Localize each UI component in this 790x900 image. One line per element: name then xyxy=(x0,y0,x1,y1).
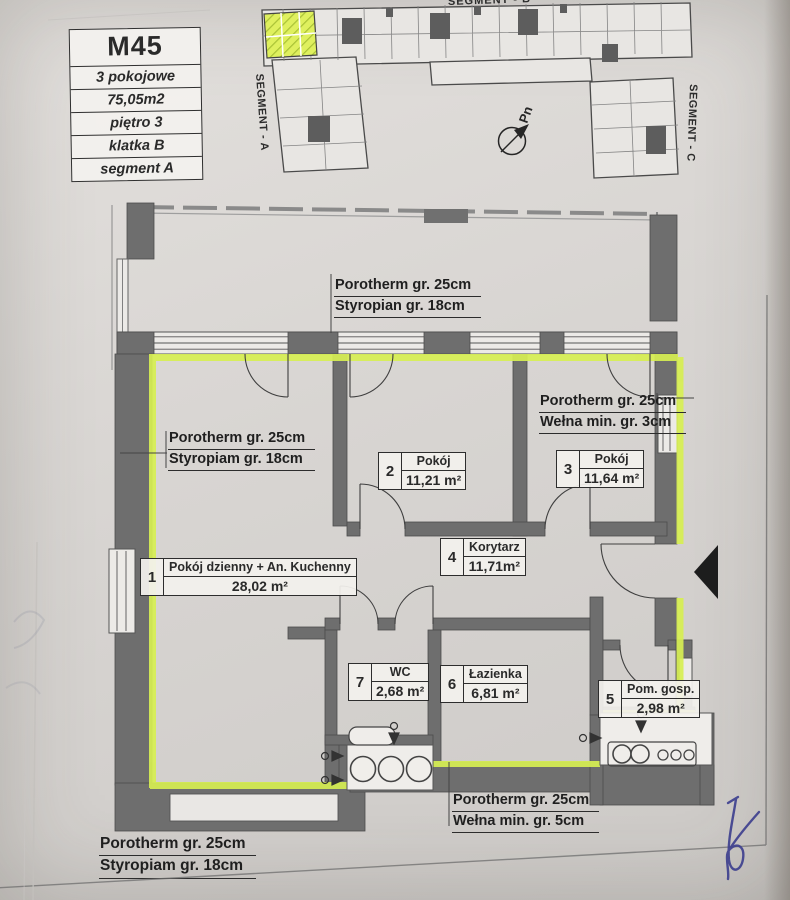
room-area: 2,98 m² xyxy=(622,699,699,717)
paper-creases xyxy=(6,542,44,900)
wall-label-bottom: Porotherm gr. 25cm Wełna min. gr. 5cm xyxy=(452,791,599,833)
north-arrow-icon xyxy=(499,124,530,155)
unit-id: M45 xyxy=(70,28,201,67)
wall-label-left: Porotherm gr. 25cm Styropiam gr. 18cm xyxy=(168,429,315,471)
apartment-info-card: M45 3 pokojowe 75,05m2 piętro 3 klatka B… xyxy=(69,27,204,182)
sink-symbol xyxy=(613,745,631,763)
wall-label-bottom-left: Porotherm gr. 25cm Styropiam gr. 18cm xyxy=(99,834,256,879)
room-label-wc: 7 WC 2,68 m² xyxy=(348,663,429,701)
unit-floor: piętro 3 xyxy=(71,111,201,136)
room-area: 11,71m² xyxy=(464,557,525,575)
highlighted-unit xyxy=(264,11,317,58)
room-name: WC xyxy=(372,664,428,682)
segment-a-label: SEGMENT - A xyxy=(253,73,270,151)
room-name: Pokój dzienny + An. Kuchenny xyxy=(164,559,356,577)
room-area: 11,21 m² xyxy=(402,471,465,489)
room-name: Pokój xyxy=(580,451,643,469)
room-name: Łazienka xyxy=(464,666,527,684)
room-number: 5 xyxy=(599,681,621,717)
room-number: 2 xyxy=(379,453,401,489)
entrance-triangle-marker xyxy=(694,545,718,599)
photo-edge-shadow xyxy=(764,0,790,900)
building-overview-drawing: SEGMENT - A SEGMENT - C SEGMENT - B Pn xyxy=(228,0,728,195)
room-name: Pom. gosp. xyxy=(622,681,699,699)
wall-label-top: Porotherm gr. 25cm Styropian gr. 18cm xyxy=(334,276,481,318)
room-area: 6,81 m² xyxy=(464,684,527,702)
unit-rooms-count: 3 pokojowe xyxy=(70,65,200,90)
room-number: 4 xyxy=(441,539,463,575)
room-label-living: 1 Pokój dzienny + An. Kuchenny 28,02 m² xyxy=(140,558,357,596)
room-number: 6 xyxy=(441,666,463,702)
washer-symbol xyxy=(379,757,404,782)
segment-c-label: SEGMENT - C xyxy=(684,84,699,162)
room-name: Pokój xyxy=(402,453,465,471)
washer-symbol xyxy=(351,757,376,782)
washer-symbol xyxy=(407,757,432,782)
north-label: Pn xyxy=(516,104,536,125)
unit-staircase: klatka B xyxy=(72,134,202,159)
room-number: 3 xyxy=(557,451,579,487)
room-number: 1 xyxy=(141,559,163,595)
room-label-bathroom: 6 Łazienka 6,81 m² xyxy=(440,665,528,703)
room-label-corridor: 4 Korytarz 11,71m² xyxy=(440,538,526,576)
wall-label-right: Porotherm gr. 25cm Wełna min. gr. 3cm xyxy=(539,392,686,434)
room-area: 2,68 m² xyxy=(372,682,428,700)
room-area: 28,02 m² xyxy=(164,577,356,595)
photographed-floorplan-page: M45 3 pokojowe 75,05m2 piętro 3 klatka B… xyxy=(0,0,790,900)
room-label-room3: 3 Pokój 11,64 m² xyxy=(556,450,644,488)
unit-area: 75,05m2 xyxy=(71,88,201,113)
room-label-room2: 2 Pokój 11,21 m² xyxy=(378,452,466,490)
room-area: 11,64 m² xyxy=(580,469,643,487)
room-label-utility: 5 Pom. gosp. 2,98 m² xyxy=(598,680,700,718)
sink-symbol xyxy=(631,745,649,763)
room-number: 7 xyxy=(349,664,371,700)
room-name: Korytarz xyxy=(464,539,525,557)
unit-segment: segment A xyxy=(72,157,202,181)
